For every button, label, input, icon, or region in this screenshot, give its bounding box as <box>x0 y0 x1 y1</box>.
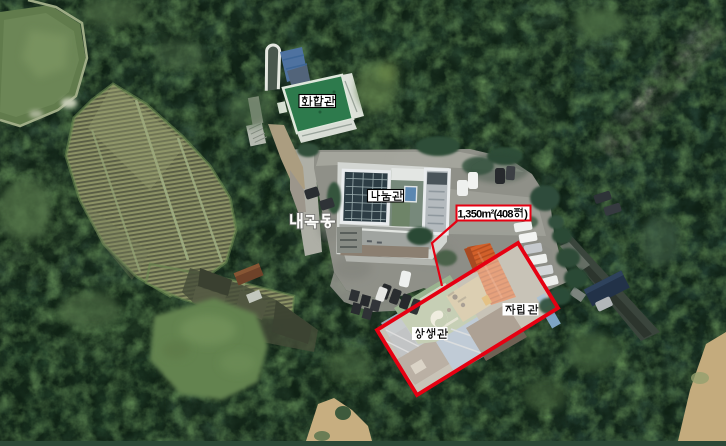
svg-text:): ) <box>524 209 528 221</box>
svg-text:1,350m²(408: 1,350m²(408 <box>458 209 514 221</box>
